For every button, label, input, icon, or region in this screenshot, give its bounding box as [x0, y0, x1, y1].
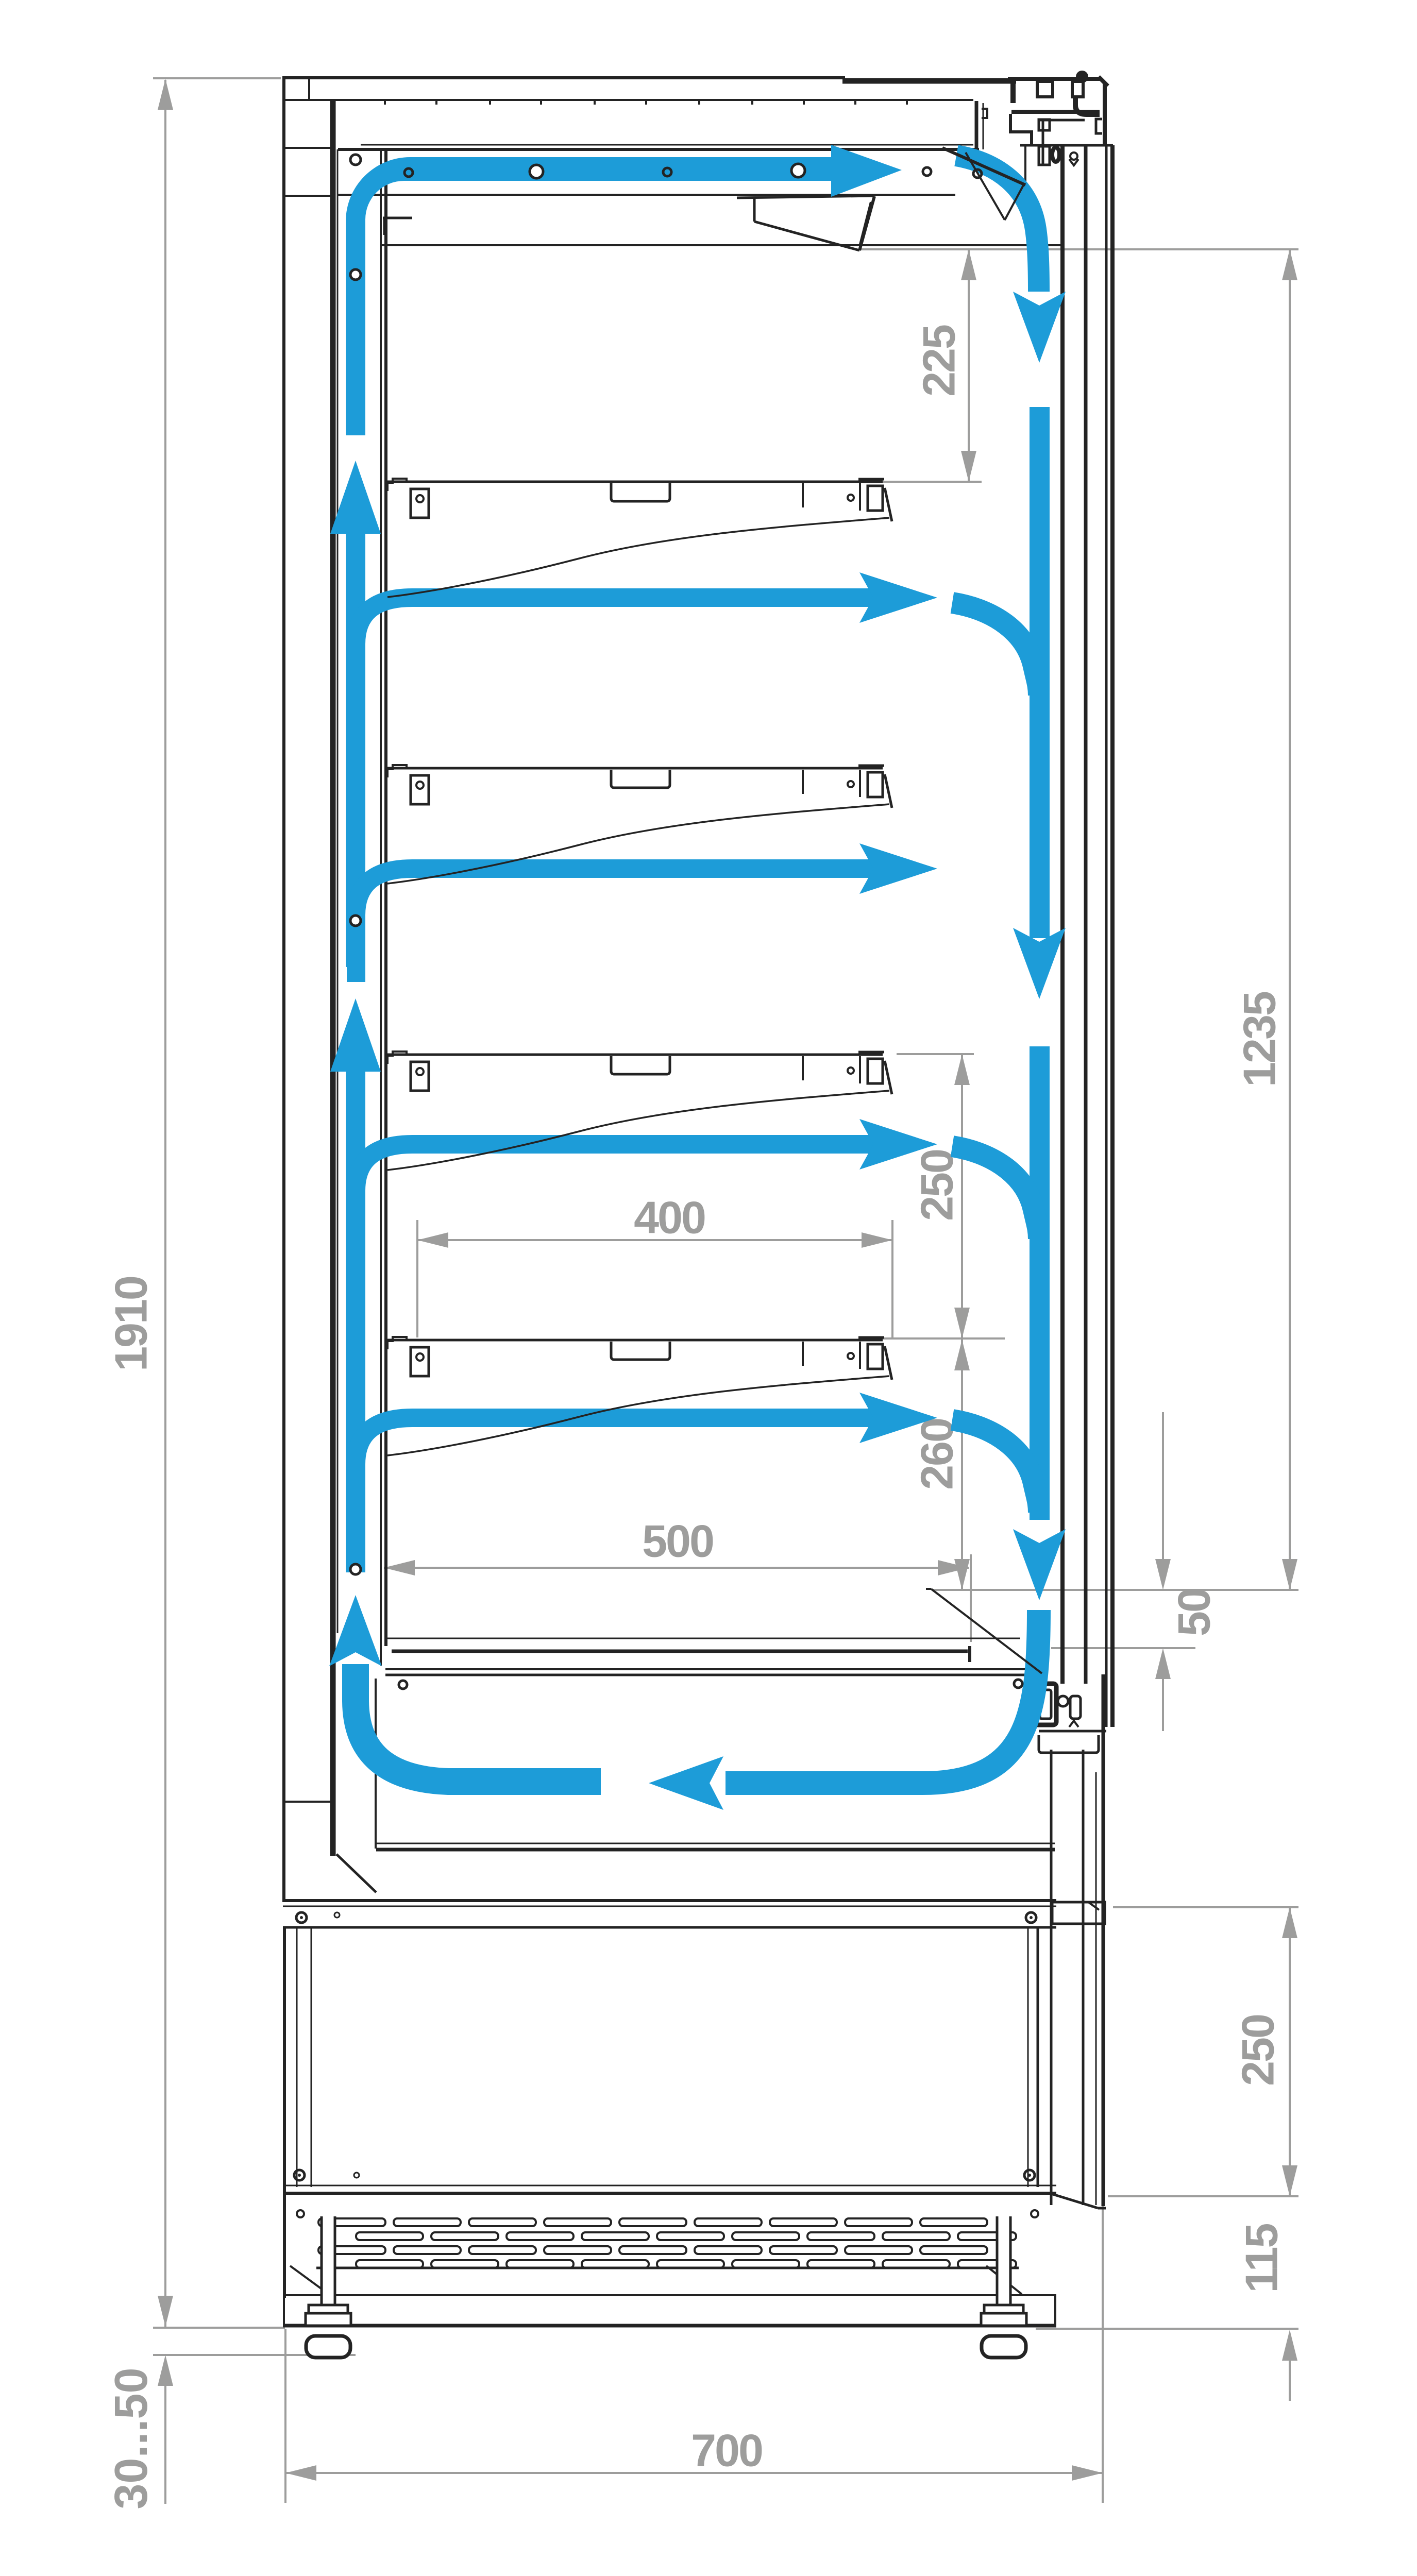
svg-text:1235: 1235 — [1234, 992, 1285, 1087]
svg-text:250: 250 — [1233, 2015, 1284, 2086]
svg-text:1910: 1910 — [106, 1277, 157, 1371]
svg-text:115: 115 — [1236, 2224, 1287, 2293]
svg-text:500: 500 — [642, 1516, 713, 1567]
svg-text:225: 225 — [914, 325, 965, 397]
svg-text:400: 400 — [634, 1192, 705, 1243]
svg-text:250: 250 — [912, 1150, 963, 1221]
svg-text:700: 700 — [691, 2425, 762, 2476]
svg-text:50: 50 — [1169, 1589, 1220, 1636]
svg-text:30...50: 30...50 — [106, 2367, 157, 2509]
